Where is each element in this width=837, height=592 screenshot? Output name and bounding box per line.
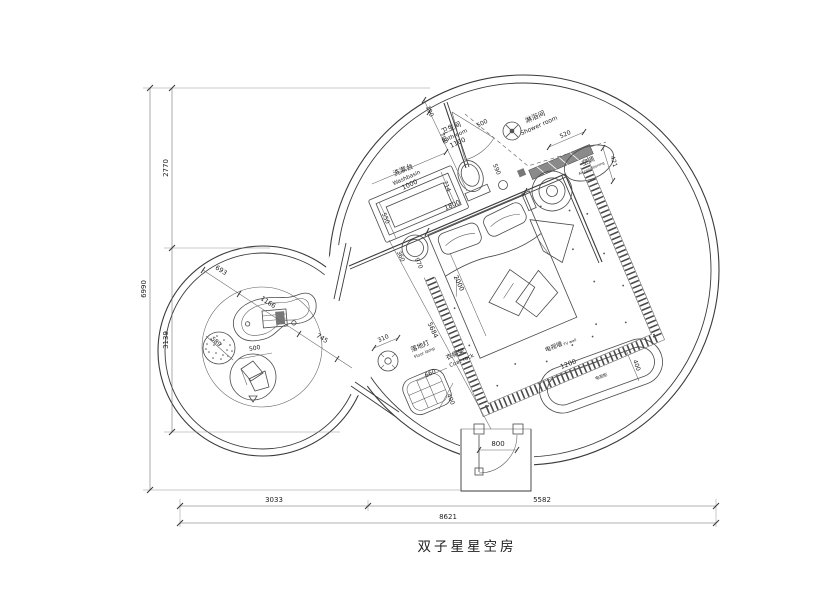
kidney-desk (228, 285, 321, 346)
dim-desk-length: 1166 (259, 294, 277, 310)
dim-left-lower: 3139 (162, 331, 170, 349)
floor-plan-canvas: 800 (0, 0, 837, 592)
entry-mask (460, 426, 534, 494)
bed-platform (405, 156, 664, 416)
page-title: 双子星星空房 (418, 539, 517, 555)
dim-bottom-left: 3033 (265, 496, 283, 504)
dim-lamp-diameter: 310 (377, 333, 390, 344)
bedside-stool (402, 235, 428, 261)
dim-overall-width: 8621 (439, 513, 457, 521)
blanket-fold-1 (480, 263, 542, 324)
dim-entry-door: 800 (491, 440, 504, 448)
dim-room-diagonal: 5684 (426, 321, 440, 339)
tv-cabinet-label: 电视柜 (594, 371, 608, 382)
dim-bottom-right: 5582 (533, 496, 551, 504)
tv-wall-label-en: TV wall (562, 337, 577, 347)
blanket-fold-2 (508, 267, 563, 322)
outer-dimensions: 6990 2770 3139 3033 5582 8621 (140, 85, 719, 527)
shower-label: 淋浴间 Shower room (515, 104, 559, 137)
toilet (453, 157, 490, 201)
floor-plan-page: 800 (0, 0, 837, 592)
dim-bed-width: 1800 (443, 198, 461, 212)
tv-wall-label-zh: 电视墙 (544, 340, 564, 354)
coat-rack-label: 衣帽架 Coat rack (444, 343, 476, 370)
dim-cushion-diameter: 500 (248, 344, 261, 353)
dim-toilet-width: 714 (441, 180, 452, 193)
pouf (203, 332, 235, 364)
laptop (262, 309, 287, 328)
blanket-drape (530, 205, 585, 268)
dim-overall-height: 6990 (140, 280, 148, 298)
dim-bed-length: 2000 (452, 274, 466, 292)
floor-lamp-label: 落地灯 Floor lamp (409, 336, 436, 359)
dim-drain-offset: 590 (491, 163, 502, 176)
dim-pouf-diameter: 589 (209, 335, 222, 348)
dim-left-seg-a: 693 (214, 264, 229, 277)
passage-mask (316, 242, 382, 398)
cushion-seat (230, 354, 276, 402)
shower-head-icon (503, 122, 521, 140)
dim-shower-length: 520 (559, 129, 572, 140)
dim-left-upper: 2770 (162, 159, 170, 177)
tv-wall-label: 电视墙 TV wall (544, 334, 577, 354)
washbasin-label: 洗漱台 Washbasin 1000 (388, 159, 426, 194)
dim-shower-door: 500 (476, 118, 490, 130)
bathroom-label: 卫生间 Bathroom 1100 (437, 118, 472, 152)
floor-lamp (378, 351, 398, 371)
dim-tv-cabinet-depth: 400 (631, 359, 642, 372)
floor-drain (499, 181, 508, 190)
